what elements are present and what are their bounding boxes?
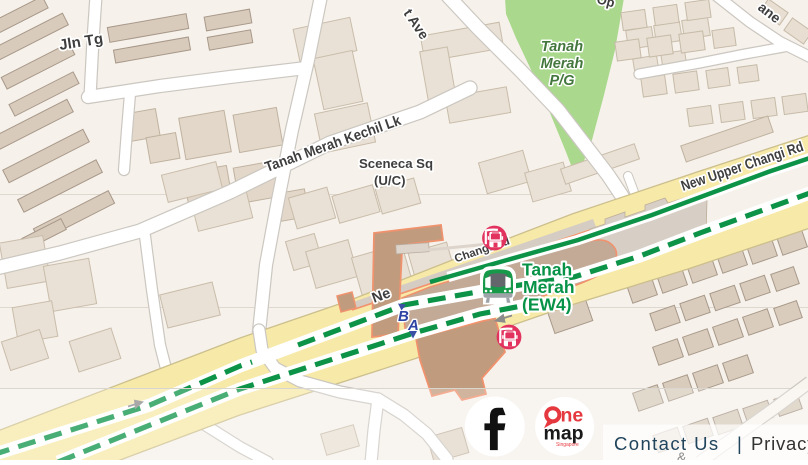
svg-text:Privacy: Privacy bbox=[751, 433, 808, 454]
svg-text:Sceneca Sq: Sceneca Sq bbox=[359, 156, 433, 171]
svg-text:Merah: Merah bbox=[541, 56, 584, 72]
svg-text:|: | bbox=[737, 433, 742, 454]
svg-text:(EW4): (EW4) bbox=[522, 295, 572, 315]
svg-text:Tanah: Tanah bbox=[541, 39, 583, 55]
svg-text:&: & bbox=[677, 449, 687, 460]
svg-text:P/G: P/G bbox=[550, 73, 575, 89]
svg-text:Singapore: Singapore bbox=[556, 442, 579, 448]
svg-text:(U/C): (U/C) bbox=[374, 173, 406, 188]
svg-text:Contact Us: Contact Us bbox=[614, 433, 720, 454]
